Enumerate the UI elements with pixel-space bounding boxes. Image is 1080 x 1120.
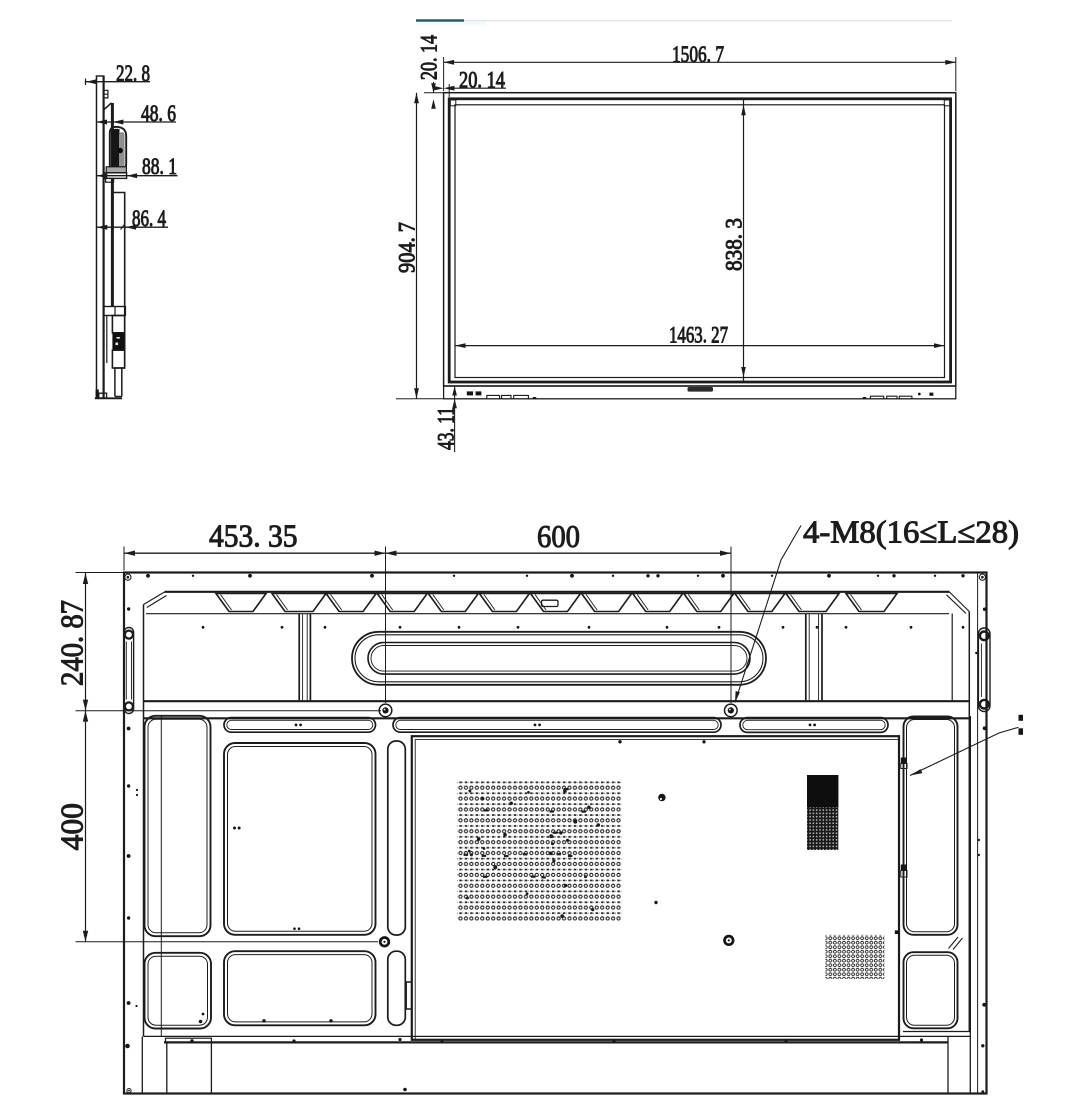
svg-text:1463. 27: 1463. 27 [669,323,728,348]
svg-text:400: 400 [55,803,90,851]
svg-text:1506. 7: 1506. 7 [672,42,724,67]
svg-text:240. 87: 240. 87 [55,600,90,686]
svg-text:600: 600 [537,519,580,554]
svg-text:4-M8(16≤L≤28): 4-M8(16≤L≤28) [803,515,1019,550]
svg-text:453. 35: 453. 35 [209,519,298,554]
svg-text:904. 7: 904. 7 [395,222,420,273]
svg-text:20. 14: 20. 14 [417,35,442,80]
svg-text:838. 3: 838. 3 [722,218,747,271]
